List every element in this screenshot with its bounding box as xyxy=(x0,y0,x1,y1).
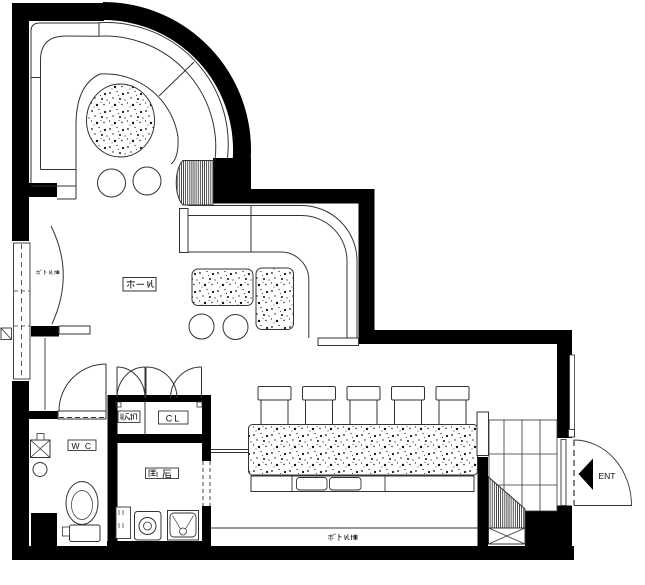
svg-text:ENT: ENT xyxy=(599,471,616,481)
svg-text:CL: CL xyxy=(166,414,182,424)
svg-text:W C: W C xyxy=(71,441,92,451)
